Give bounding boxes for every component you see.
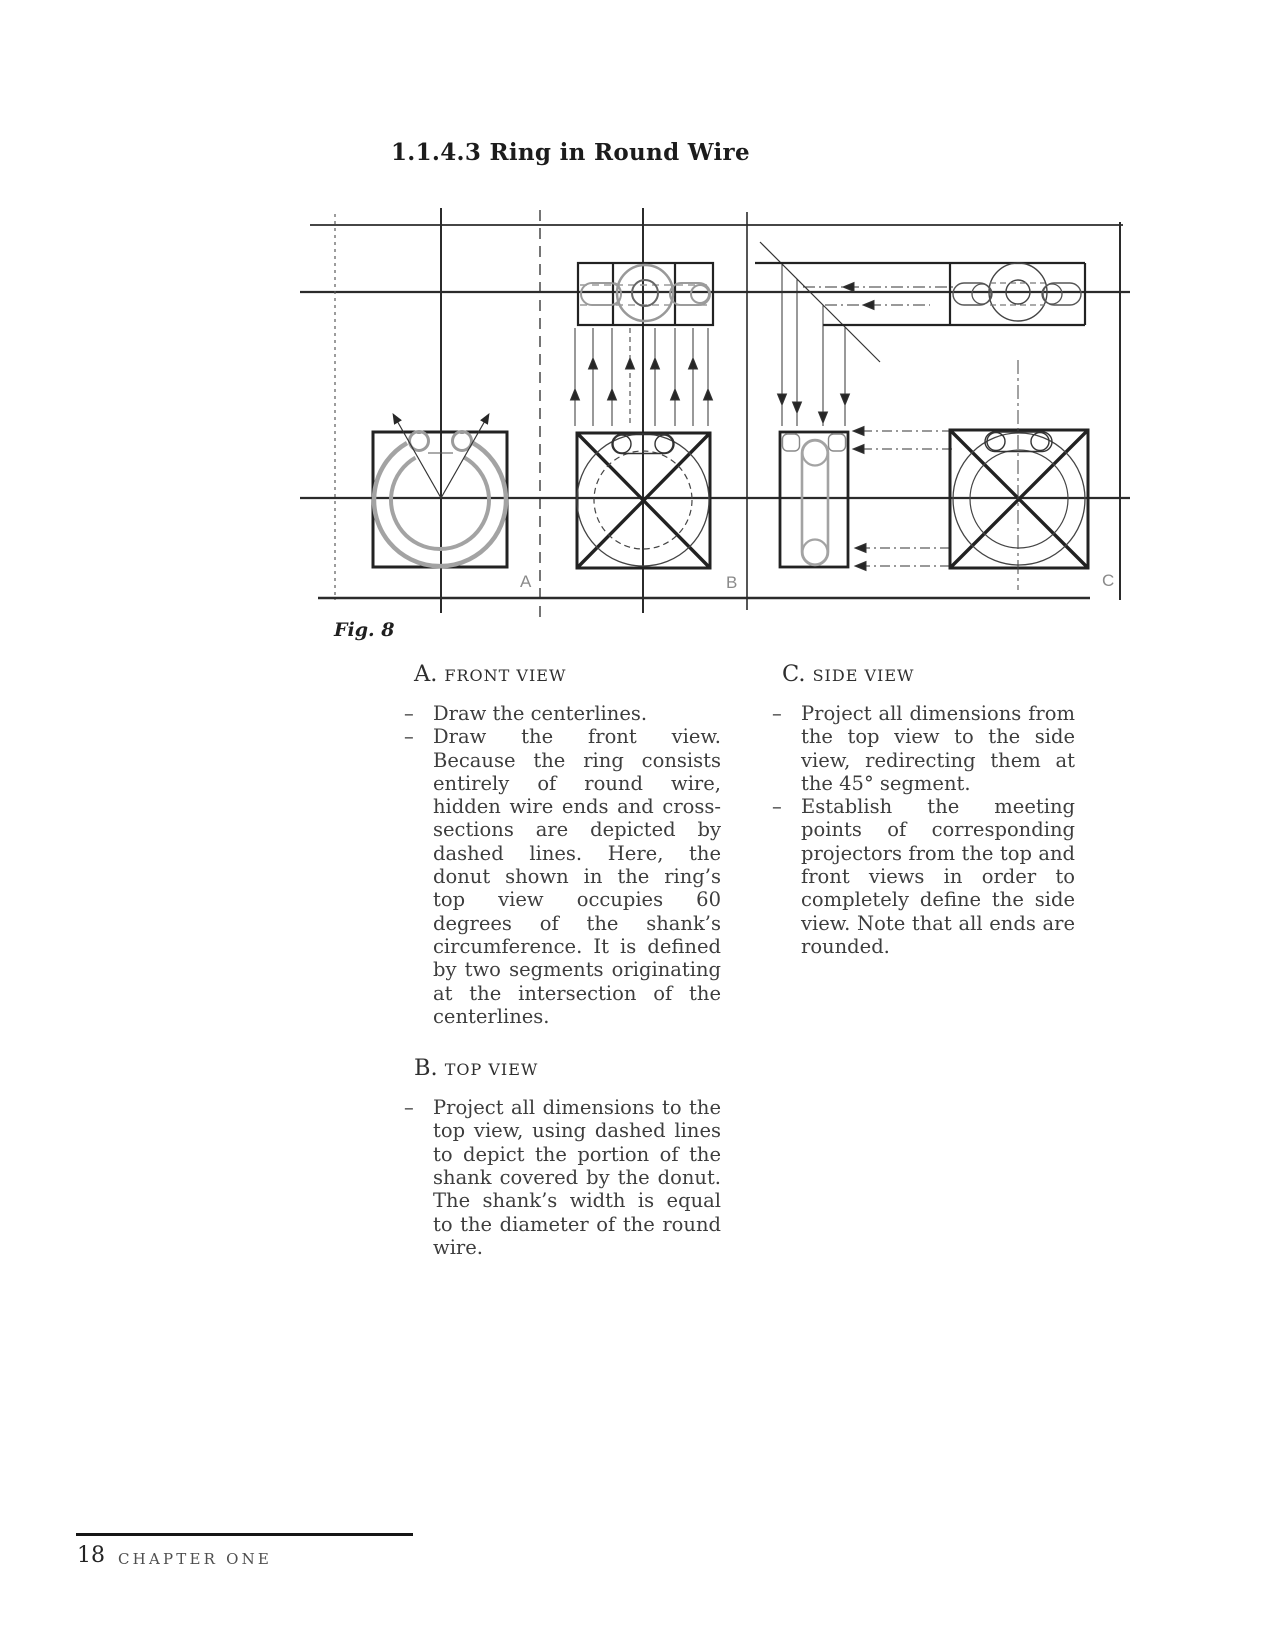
fig8-drawing: A [290, 200, 1140, 620]
chapter-title: CHAPTER ONE [118, 1550, 272, 1568]
column-left: A.FRONT VIEW – Draw the centerlines. – D… [404, 661, 721, 1259]
bullet-text: Draw the front view. Because the ring co… [433, 725, 721, 1028]
panel-label-a: A [520, 572, 532, 591]
panel-c-front-view: C [950, 360, 1114, 590]
figure-caption: Fig. 8 [334, 619, 394, 641]
bullet-text: Project all dimensions from the top view… [801, 702, 1075, 795]
panel-a-front-view: A [373, 411, 532, 591]
projectors-b [571, 328, 713, 426]
bullet-dash: – [772, 702, 782, 725]
bullet-text: Project all dimensions to the top view, … [433, 1096, 721, 1259]
bullet-dash: – [404, 1096, 414, 1119]
section-b-heading: B.TOP VIEW [414, 1055, 721, 1083]
projectors-c [778, 264, 957, 571]
list-item: – Project all dimensions from the top vi… [772, 702, 1075, 795]
list-item: – Draw the front view. Because the ring … [404, 725, 721, 1028]
projection-grid [300, 208, 1130, 618]
list-item: – Draw the centerlines. [404, 702, 721, 725]
section-a-name: FRONT VIEW [444, 666, 566, 685]
section-a-list: – Draw the centerlines. – Draw the front… [404, 702, 721, 1028]
section-b-name: TOP VIEW [445, 1060, 539, 1079]
bullet-dash: – [404, 702, 414, 725]
panel-c-side-view [780, 432, 848, 567]
section-a-heading: A.FRONT VIEW [414, 661, 721, 689]
bullet-text: Draw the centerlines. [433, 702, 647, 725]
bullet-text: Establish the meeting points of correspo… [801, 795, 1075, 958]
panel-c-top-view [755, 242, 1085, 362]
footer-rule [76, 1533, 413, 1536]
section-a-letter: A. [414, 661, 437, 687]
section-c-list: – Project all dimensions from the top vi… [772, 702, 1075, 958]
list-item: – Establish the meeting points of corres… [772, 795, 1075, 958]
section-c-letter: C. [782, 661, 806, 687]
section-b-letter: B. [414, 1055, 438, 1081]
fig8-svg: A [290, 200, 1140, 620]
page-title: 1.1.4.3 Ring in Round Wire [391, 139, 750, 166]
section-c-heading: C.SIDE VIEW [782, 661, 1075, 689]
section-b-list: – Project all dimensions to the top view… [404, 1096, 721, 1259]
page-number: 18 [77, 1543, 105, 1568]
panel-b-top-view [578, 263, 713, 325]
panel-label-b: B [726, 573, 737, 592]
panel-b-front-view: B [577, 433, 737, 592]
column-right: C.SIDE VIEW – Project all dimensions fro… [772, 661, 1075, 958]
bullet-dash: – [772, 795, 782, 818]
bullet-dash: – [404, 725, 414, 748]
list-item: – Project all dimensions to the top view… [404, 1096, 721, 1259]
book-page: 1.1.4.3 Ring in Round Wire [0, 0, 1275, 1650]
section-c-name: SIDE VIEW [813, 666, 915, 685]
panel-label-c: C [1102, 571, 1114, 590]
